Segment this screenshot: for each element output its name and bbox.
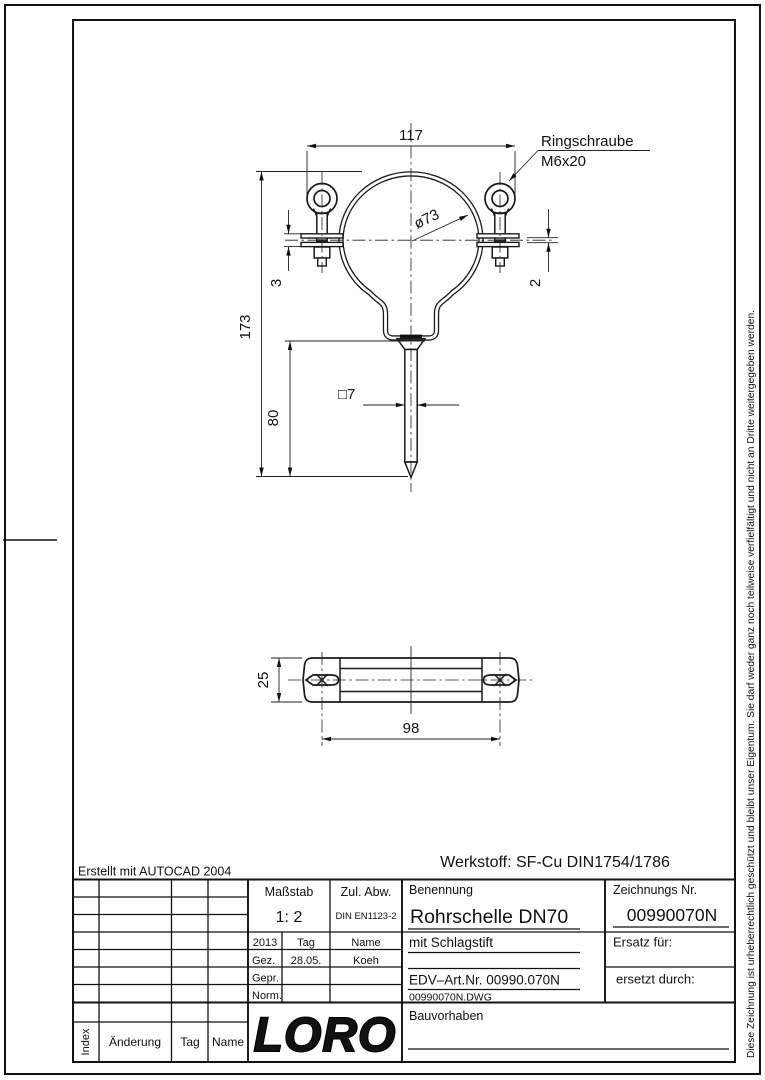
dim-square7-label: □7 — [338, 386, 355, 403]
edv-art-nr: EDV–Art.Nr. 00990.070N — [409, 973, 560, 988]
dim-2: 2 — [527, 209, 558, 287]
ersetzt-durch: ersetzt durch: — [616, 972, 695, 987]
title-block: Maßstab 1: 2 Zul. Abw. DIN EN1123-2 2013… — [252, 883, 729, 1062]
callout-line1: Ringschraube — [541, 133, 634, 150]
dim-173-label: 173 — [237, 314, 254, 339]
benennung-label: Benennung — [409, 883, 473, 897]
dim-98: 98 — [322, 720, 500, 741]
gez-name: Koeh — [353, 955, 379, 967]
copyright-strip: Diese Zeichnung ist urheberrechtlich ges… — [746, 310, 757, 1058]
masstab-value: 1: 2 — [276, 909, 303, 926]
dwg-file: 00990070N.DWG — [409, 992, 492, 1004]
dim-dia73-label: ø73 — [411, 206, 442, 233]
dim-square7: □7 — [338, 386, 459, 407]
dim-117-label: 117 — [399, 127, 423, 144]
zeichnungs-nr-label: Zeichnungs Nr. — [613, 883, 697, 897]
callout-ringschraube: Ringschraube M6x20 — [509, 133, 650, 181]
dim-80-label: 80 — [265, 410, 282, 427]
approval-year: 2013 — [253, 937, 277, 949]
norm-label: Norm. — [252, 990, 282, 1002]
top-view-dimensions: 25 98 — [255, 658, 500, 741]
revision-index-label: Index — [80, 1028, 92, 1055]
subtitle: mit Schlagstift — [409, 935, 493, 950]
approval-tag-header: Tag — [297, 937, 315, 949]
revision-aenderung-label: Änderung — [109, 1035, 161, 1049]
drawing-sheet: 117 173 80 3 — [0, 0, 765, 1080]
zeichnungs-nr-value: 00990070N — [627, 905, 718, 925]
gez-label: Gez. — [252, 955, 275, 967]
dim-2-label: 2 — [527, 279, 544, 287]
bauvorhaben-label: Bauvorhaben — [409, 1009, 483, 1023]
dim-dia73: ø73 — [411, 206, 468, 241]
callout-line2: M6x20 — [541, 153, 586, 170]
dim-3: 3 — [268, 210, 302, 287]
dim-80: 80 — [265, 341, 425, 477]
material-note: Werkstoff: SF-Cu DIN1754/1786 — [440, 854, 670, 871]
ersatz-fuer: Ersatz für: — [613, 935, 672, 950]
dim-98-label: 98 — [403, 720, 420, 737]
autocad-note: Erstellt mit AUTOCAD 2004 — [78, 865, 231, 879]
revision-name-label: Name — [212, 1035, 244, 1049]
zul-abw-value: DIN EN1123-2 — [335, 911, 396, 922]
gez-date: 28.05. — [291, 955, 322, 967]
gepr-label: Gepr. — [252, 973, 279, 985]
dim-3-label: 3 — [268, 279, 285, 287]
dim-25-label: 25 — [255, 672, 272, 689]
benennung-value: Rohrschelle DN70 — [410, 906, 568, 928]
revision-table: Index Änderung Tag Name — [80, 1028, 244, 1055]
approval-name-header: Name — [351, 937, 380, 949]
loro-logo: LORO — [254, 1009, 397, 1062]
copyright-text: Diese Zeichnung ist urheberrechtlich ges… — [746, 310, 757, 1058]
revision-tag-label: Tag — [180, 1035, 199, 1049]
masstab-label: Maßstab — [265, 885, 314, 899]
zul-abw-label: Zul. Abw. — [341, 885, 392, 899]
